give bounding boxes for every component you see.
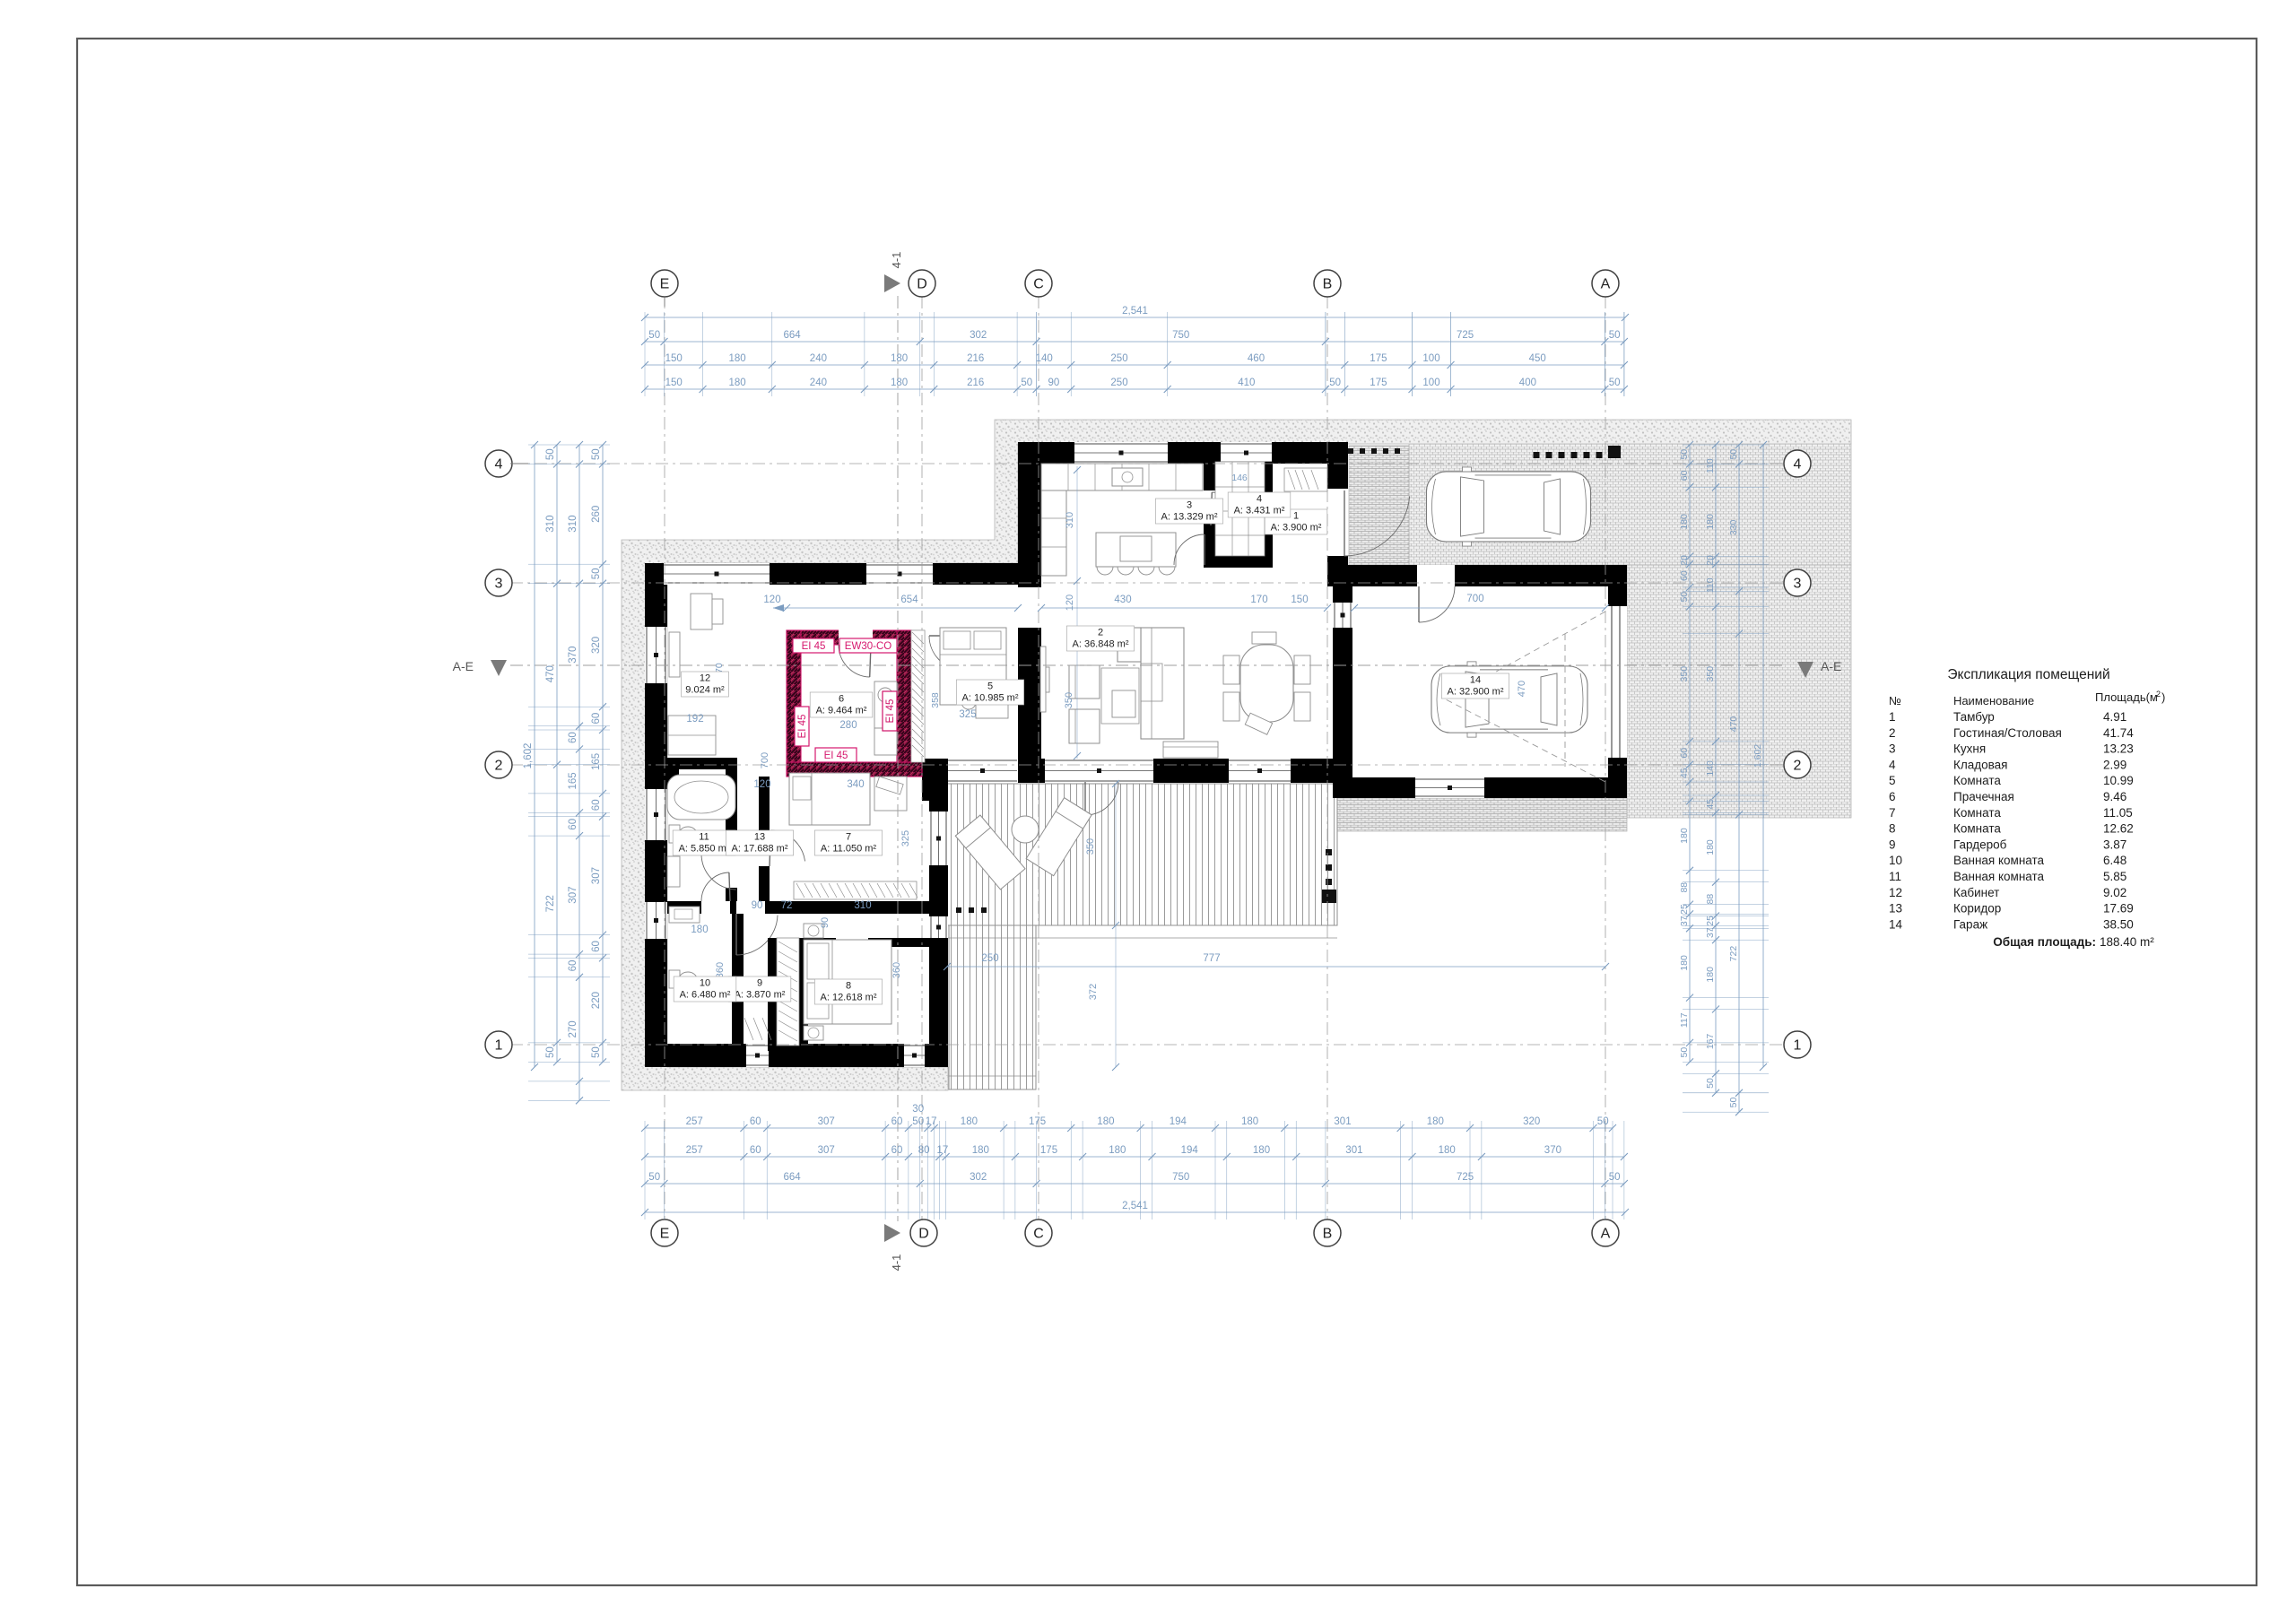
svg-text:60: 60: [1679, 470, 1690, 481]
svg-text:340: 340: [847, 779, 864, 790]
svg-text:A: 10.985 m²: A: 10.985 m²: [962, 693, 1019, 704]
svg-text:A-E: A-E: [1821, 659, 1841, 673]
svg-text:50: 50: [1329, 378, 1341, 388]
svg-text:180: 180: [1439, 1145, 1456, 1156]
svg-text:216: 216: [967, 378, 984, 388]
svg-text:2: 2: [1889, 726, 1896, 740]
svg-text:D: D: [917, 277, 927, 292]
svg-text:B: B: [1323, 1227, 1333, 1242]
svg-text:307: 307: [568, 887, 578, 904]
svg-text:180: 180: [1253, 1145, 1270, 1156]
svg-text:4.91: 4.91: [2103, 710, 2126, 724]
svg-text:14: 14: [1470, 675, 1481, 686]
svg-text:250: 250: [981, 953, 998, 964]
svg-text:A: 36.848 m²: A: 36.848 m²: [1073, 639, 1129, 650]
svg-text:664: 664: [784, 1172, 802, 1183]
svg-text:310: 310: [545, 516, 556, 533]
svg-text:Ванная комната: Ванная комната: [1953, 870, 2045, 883]
svg-text:750: 750: [1172, 330, 1189, 341]
svg-text:320: 320: [591, 637, 602, 654]
svg-text:470: 470: [1728, 716, 1739, 733]
svg-text:13: 13: [754, 832, 765, 843]
svg-text:350: 350: [1705, 666, 1716, 682]
svg-text:9: 9: [757, 978, 762, 989]
svg-text:120: 120: [753, 779, 770, 790]
svg-text:72: 72: [781, 900, 793, 911]
svg-text:3: 3: [1794, 577, 1802, 592]
svg-text:117: 117: [1679, 1012, 1690, 1028]
svg-text:216: 216: [967, 353, 984, 364]
svg-text:725: 725: [1457, 1172, 1474, 1183]
svg-text:9.46: 9.46: [2103, 790, 2126, 803]
svg-text:2: 2: [1098, 628, 1103, 638]
svg-text:A-E: A-E: [453, 659, 474, 673]
svg-text:725: 725: [1457, 330, 1474, 341]
svg-text:257: 257: [686, 1145, 703, 1156]
svg-text:150: 150: [665, 353, 683, 364]
svg-text:302: 302: [970, 1172, 987, 1183]
svg-text:180: 180: [1679, 514, 1690, 530]
svg-text:88: 88: [1705, 894, 1716, 905]
svg-text:8: 8: [1889, 822, 1896, 836]
svg-text:13.23: 13.23: [2103, 742, 2134, 756]
svg-text:Гараж: Гараж: [1953, 917, 1987, 931]
svg-text:170: 170: [1250, 595, 1267, 605]
svg-text:180: 180: [891, 378, 908, 388]
svg-text:9.024 m²: 9.024 m²: [685, 685, 725, 696]
svg-text:E: E: [660, 1227, 670, 1242]
svg-text:60: 60: [750, 1116, 761, 1127]
svg-text:50: 50: [1609, 378, 1621, 388]
svg-text:2,541: 2,541: [1122, 306, 1148, 317]
svg-text:45: 45: [1705, 799, 1716, 810]
svg-text:): ): [2161, 690, 2165, 704]
svg-text:50: 50: [1705, 1078, 1716, 1089]
svg-text:1: 1: [1794, 1038, 1802, 1054]
svg-text:410: 410: [1238, 378, 1255, 388]
svg-text:60: 60: [591, 713, 602, 725]
svg-text:3: 3: [1889, 742, 1896, 756]
svg-text:325: 325: [959, 709, 976, 720]
svg-text:350: 350: [1064, 692, 1074, 708]
svg-text:4: 4: [495, 457, 503, 473]
svg-text:240: 240: [810, 353, 827, 364]
svg-text:25: 25: [1705, 916, 1716, 926]
svg-text:60: 60: [1679, 570, 1690, 581]
svg-text:165: 165: [568, 772, 578, 789]
svg-text:11: 11: [1889, 870, 1901, 883]
svg-text:A: 3.900 m²: A: 3.900 m²: [1271, 523, 1322, 534]
svg-text:370: 370: [568, 647, 578, 664]
svg-text:50: 50: [591, 1046, 602, 1058]
svg-text:180: 180: [729, 353, 746, 364]
svg-text:50: 50: [1679, 449, 1690, 460]
svg-text:37: 37: [1679, 916, 1690, 926]
svg-text:194: 194: [1170, 1116, 1187, 1127]
svg-text:EI 45: EI 45: [824, 751, 848, 761]
svg-text:100: 100: [1422, 353, 1439, 364]
svg-text:372: 372: [1088, 984, 1099, 1000]
svg-text:325: 325: [900, 830, 911, 846]
svg-text:60: 60: [891, 1145, 903, 1156]
svg-text:250: 250: [1110, 353, 1127, 364]
svg-text:8: 8: [846, 981, 851, 992]
svg-text:175: 175: [1029, 1116, 1046, 1127]
svg-text:2.99: 2.99: [2103, 758, 2126, 771]
svg-text:60: 60: [591, 941, 602, 952]
svg-text:4: 4: [1889, 758, 1896, 771]
svg-text:B: B: [1323, 277, 1333, 292]
svg-text:A: 3.870 m²: A: 3.870 m²: [735, 990, 786, 1001]
svg-text:EW30-CO: EW30-CO: [845, 641, 891, 652]
svg-text:220: 220: [591, 992, 602, 1009]
svg-text:Коридор: Коридор: [1953, 902, 2001, 916]
svg-text:4-1: 4-1: [890, 1254, 903, 1271]
svg-text:17.69: 17.69: [2103, 902, 2134, 916]
svg-text:C: C: [1033, 1227, 1044, 1242]
svg-text:722: 722: [1728, 946, 1739, 962]
svg-text:194: 194: [1181, 1145, 1199, 1156]
svg-text:60: 60: [750, 1145, 761, 1156]
svg-text:146: 146: [1231, 473, 1248, 483]
svg-text:12: 12: [700, 673, 710, 684]
svg-text:1: 1: [495, 1038, 503, 1054]
svg-text:280: 280: [839, 720, 857, 731]
svg-text:37: 37: [1705, 927, 1716, 938]
svg-text:180: 180: [1679, 955, 1690, 971]
svg-text:A: 17.688 m²: A: 17.688 m²: [732, 844, 788, 855]
svg-text:777: 777: [1203, 953, 1220, 964]
svg-text:EI 45: EI 45: [885, 699, 896, 724]
svg-text:180: 180: [972, 1145, 989, 1156]
svg-text:20: 20: [1679, 555, 1690, 566]
svg-text:A: A: [1601, 277, 1611, 292]
svg-text:50: 50: [1728, 449, 1739, 460]
svg-text:310: 310: [1065, 512, 1075, 528]
svg-text:250: 250: [1110, 378, 1127, 388]
svg-text:664: 664: [784, 330, 802, 341]
svg-text:307: 307: [818, 1145, 835, 1156]
svg-text:10: 10: [700, 978, 710, 989]
svg-text:10: 10: [1889, 854, 1902, 867]
svg-text:175: 175: [1370, 353, 1387, 364]
svg-text:Тамбур: Тамбур: [1953, 710, 1995, 724]
svg-text:3.87: 3.87: [2103, 838, 2126, 851]
svg-text:180: 180: [1679, 828, 1690, 844]
svg-text:110: 110: [1705, 577, 1716, 593]
svg-text:A: 32.900 m²: A: 32.900 m²: [1448, 687, 1504, 698]
svg-text:9: 9: [1889, 838, 1896, 851]
svg-text:90: 90: [1048, 378, 1060, 388]
svg-text:700: 700: [760, 752, 770, 768]
svg-text:50: 50: [591, 448, 602, 460]
svg-text:9.02: 9.02: [2103, 886, 2126, 899]
svg-text:180: 180: [1705, 514, 1716, 530]
svg-text:C: C: [1033, 277, 1044, 292]
svg-text:2: 2: [1794, 759, 1802, 774]
svg-text:180: 180: [1097, 1116, 1114, 1127]
svg-text:Комната: Комната: [1953, 774, 2001, 787]
svg-text:50: 50: [545, 448, 556, 460]
svg-text:11.05: 11.05: [2103, 806, 2133, 820]
svg-text:180: 180: [691, 924, 708, 935]
svg-text:25: 25: [1679, 904, 1690, 915]
svg-text:4: 4: [1257, 494, 1262, 505]
svg-text:№: №: [1889, 694, 1901, 707]
svg-text:41.74: 41.74: [2103, 726, 2134, 740]
svg-text:654: 654: [900, 595, 918, 605]
svg-text:50: 50: [591, 568, 602, 580]
svg-text:A: 12.618 m²: A: 12.618 m²: [821, 993, 877, 1003]
svg-text:60: 60: [568, 819, 578, 830]
svg-text:110: 110: [1705, 458, 1716, 473]
svg-text:50: 50: [1679, 1047, 1690, 1058]
svg-text:EI 45: EI 45: [802, 641, 826, 652]
svg-text:6: 6: [1889, 790, 1896, 803]
svg-text:60: 60: [591, 799, 602, 811]
svg-text:Гардероб: Гардероб: [1953, 838, 2007, 851]
svg-text:7: 7: [846, 832, 851, 843]
svg-text:30: 30: [912, 1104, 924, 1115]
svg-text:100: 100: [1422, 378, 1439, 388]
svg-text:10.99: 10.99: [2103, 774, 2134, 787]
svg-text:14: 14: [1889, 917, 1903, 931]
svg-text:50: 50: [648, 330, 660, 341]
svg-text:A: 6.480 m²: A: 6.480 m²: [680, 990, 731, 1001]
svg-text:140: 140: [1705, 760, 1716, 777]
svg-text:50: 50: [1021, 378, 1032, 388]
svg-text:307: 307: [591, 867, 602, 884]
svg-text:330: 330: [1728, 519, 1739, 535]
svg-text:E: E: [660, 277, 670, 292]
svg-text:722: 722: [545, 895, 556, 912]
svg-text:430: 430: [1114, 595, 1131, 605]
svg-text:175: 175: [1370, 378, 1387, 388]
svg-text:310: 310: [854, 900, 871, 911]
svg-text:2,541: 2,541: [1122, 1201, 1148, 1211]
svg-text:A: 3.431 m²: A: 3.431 m²: [1234, 506, 1285, 516]
svg-text:180: 180: [961, 1116, 978, 1127]
svg-text:11: 11: [699, 832, 709, 843]
svg-text:2: 2: [495, 759, 503, 774]
svg-text:5: 5: [987, 681, 993, 692]
svg-text:Комната: Комната: [1953, 806, 2001, 820]
svg-text:150: 150: [1291, 595, 1308, 605]
svg-text:Комната: Комната: [1953, 822, 2001, 836]
svg-text:A: A: [1601, 1227, 1611, 1242]
svg-text:180: 180: [1109, 1145, 1126, 1156]
svg-text:17: 17: [937, 1145, 949, 1156]
svg-text:50: 50: [1597, 1116, 1609, 1127]
svg-text:13: 13: [1889, 902, 1902, 916]
svg-text:260: 260: [591, 506, 602, 523]
svg-text:3: 3: [1187, 500, 1192, 511]
svg-text:60: 60: [891, 1116, 903, 1127]
svg-text:6: 6: [839, 694, 844, 705]
svg-text:Площадь(м: Площадь(м: [2095, 690, 2158, 704]
svg-text:750: 750: [1172, 1172, 1189, 1183]
svg-text:Общая площадь:: Общая площадь:: [1993, 935, 2096, 949]
svg-text:3: 3: [495, 577, 503, 592]
svg-text:60: 60: [568, 960, 578, 972]
svg-text:Кабинет: Кабинет: [1953, 886, 1999, 899]
svg-text:700: 700: [1466, 594, 1483, 604]
svg-text:A: 5.850 m²: A: 5.850 m²: [679, 844, 730, 855]
svg-text:370: 370: [1544, 1145, 1561, 1156]
svg-text:Экспликация помещений: Экспликация помещений: [1947, 667, 2109, 682]
svg-text:50: 50: [1609, 330, 1621, 341]
svg-text:360: 360: [715, 962, 726, 978]
svg-text:320: 320: [1523, 1116, 1540, 1127]
svg-text:80: 80: [918, 1145, 930, 1156]
svg-text:360: 360: [891, 962, 902, 978]
svg-text:1,602: 1,602: [1752, 744, 1763, 768]
svg-text:90: 90: [752, 900, 763, 911]
svg-text:350: 350: [1085, 838, 1096, 855]
svg-text:165: 165: [591, 753, 602, 770]
svg-text:A: 11.050 m²: A: 11.050 m²: [821, 844, 876, 855]
svg-text:307: 307: [818, 1116, 835, 1127]
svg-text:4: 4: [1794, 457, 1802, 473]
svg-text:Гостиная/Столовая: Гостиная/Столовая: [1953, 726, 2062, 740]
svg-text:Кухня: Кухня: [1953, 742, 1986, 756]
svg-text:50: 50: [1728, 1098, 1739, 1108]
svg-text:D: D: [918, 1227, 929, 1242]
svg-text:400: 400: [1519, 378, 1536, 388]
svg-text:450: 450: [1529, 353, 1546, 364]
svg-text:Прачечная: Прачечная: [1953, 790, 2014, 803]
svg-text:175: 175: [1040, 1145, 1057, 1156]
svg-text:Наименование: Наименование: [1953, 694, 2034, 707]
svg-text:302: 302: [970, 330, 987, 341]
svg-text:120: 120: [1065, 595, 1075, 611]
svg-text:4-1: 4-1: [890, 252, 903, 269]
svg-text:17: 17: [926, 1116, 937, 1127]
svg-text:20: 20: [1705, 555, 1716, 566]
svg-text:257: 257: [686, 1116, 703, 1127]
svg-text:A: 9.464 m²: A: 9.464 m²: [816, 706, 867, 716]
svg-text:50: 50: [912, 1116, 924, 1127]
svg-text:310: 310: [568, 516, 578, 533]
svg-text:301: 301: [1334, 1116, 1351, 1127]
svg-text:Ванная комната: Ванная комната: [1953, 854, 2045, 867]
svg-text:460: 460: [1248, 353, 1265, 364]
svg-text:6.48: 6.48: [2103, 854, 2126, 867]
svg-text:Кладовая: Кладовая: [1953, 758, 2007, 771]
svg-text:188.40 m²: 188.40 m²: [2100, 935, 2154, 949]
svg-text:60: 60: [568, 732, 578, 743]
svg-text:A: 13.329 m²: A: 13.329 m²: [1161, 512, 1218, 523]
svg-text:1,602: 1,602: [523, 743, 534, 769]
svg-text:50: 50: [545, 1046, 556, 1058]
svg-text:167: 167: [1705, 1033, 1716, 1049]
svg-text:12: 12: [1889, 886, 1902, 899]
svg-text:50: 50: [1679, 592, 1690, 603]
svg-text:90: 90: [820, 917, 831, 928]
svg-text:180: 180: [1241, 1116, 1258, 1127]
svg-text:88: 88: [1679, 882, 1690, 893]
svg-text:45: 45: [1679, 768, 1690, 778]
svg-text:180: 180: [1427, 1116, 1444, 1127]
svg-text:270: 270: [568, 1020, 578, 1037]
svg-text:EI 45: EI 45: [797, 715, 808, 739]
svg-text:50: 50: [648, 1172, 660, 1183]
svg-text:150: 150: [665, 378, 683, 388]
svg-text:470: 470: [1517, 681, 1527, 697]
svg-text:180: 180: [729, 378, 746, 388]
svg-text:180: 180: [1705, 967, 1716, 983]
svg-text:12.62: 12.62: [2103, 822, 2134, 836]
svg-text:192: 192: [686, 714, 703, 725]
svg-text:5: 5: [1889, 774, 1896, 787]
svg-text:120: 120: [763, 595, 780, 605]
svg-text:358: 358: [930, 692, 941, 708]
svg-text:60: 60: [1679, 748, 1690, 759]
svg-text:38.50: 38.50: [2103, 917, 2134, 931]
svg-text:240: 240: [810, 378, 827, 388]
svg-text:5.85: 5.85: [2103, 870, 2126, 883]
svg-text:1: 1: [1889, 710, 1896, 724]
svg-text:1: 1: [1293, 511, 1299, 522]
svg-text:301: 301: [1345, 1145, 1362, 1156]
svg-text:7: 7: [1889, 806, 1896, 820]
svg-text:470: 470: [545, 665, 556, 682]
svg-text:50: 50: [1609, 1172, 1621, 1183]
svg-text:350: 350: [1679, 666, 1690, 682]
svg-text:180: 180: [891, 353, 908, 364]
svg-text:180: 180: [1705, 839, 1716, 855]
svg-text:140: 140: [1036, 353, 1053, 364]
svg-text:2: 2: [2156, 690, 2161, 699]
